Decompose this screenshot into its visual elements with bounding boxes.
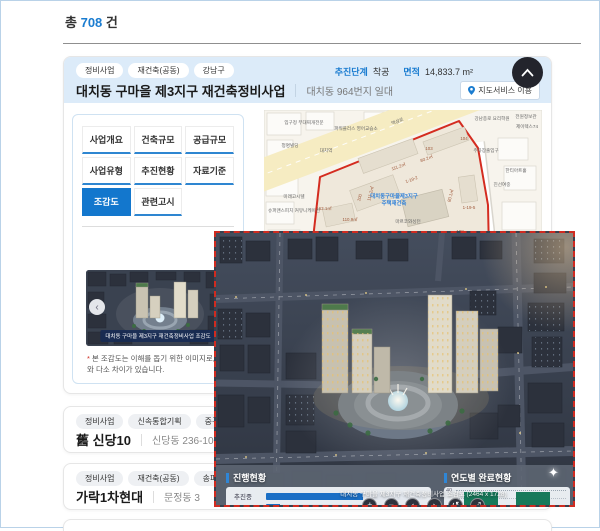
- tag-badge: 정비사업: [76, 471, 123, 486]
- list-item-tags: 정비사업 재건축(공동) 송파구: [76, 471, 234, 486]
- svg-text:주택재건축: 주택재건축: [382, 199, 407, 207]
- reset-view-button[interactable]: ↺: [448, 498, 463, 507]
- tag-badge: 정비사업: [76, 414, 123, 429]
- chevron-left-icon: ‹: [95, 302, 98, 313]
- zoom-out-button[interactable]: −: [384, 498, 399, 507]
- stage-label: 추진단계: [335, 65, 368, 78]
- zoom-in-button[interactable]: +: [362, 498, 377, 507]
- svg-text:한티아트홀: 한티아트홀: [505, 167, 526, 174]
- chevron-right-icon: ›: [433, 501, 436, 507]
- birdseye-thumbnail[interactable]: 대치동 구마을 제3지구 재건축정비사업 조감도 ‹: [86, 270, 230, 346]
- tab-birdseye-view[interactable]: 조감도: [82, 188, 131, 216]
- tab-empty-cell: [185, 188, 234, 216]
- chevron-left-icon: ‹: [411, 501, 414, 507]
- chevron-up-icon: [521, 68, 534, 77]
- viewer-controls: + − ‹ › ↺ ⤢: [274, 495, 573, 507]
- divider: [141, 434, 142, 446]
- progress-section-header: 진행현황: [226, 471, 266, 484]
- scroll-to-top-button[interactable]: [512, 57, 543, 88]
- total-suffix: 건: [106, 15, 118, 30]
- divider: [82, 226, 234, 227]
- prev-button[interactable]: ‹: [405, 498, 420, 507]
- sparkle-icon: ✦: [548, 465, 559, 481]
- list-item-address: 문정동 3: [164, 489, 200, 504]
- thumbnail-caption: 대치동 구마을 제3지구 재건축정비사업 조감도: [100, 330, 215, 342]
- svg-text:103: 103: [425, 146, 433, 151]
- list-item-title-row: 가락1차현대 문정동 3: [76, 487, 200, 506]
- svg-text:강남종로 요리학원: 강남종로 요리학원: [474, 115, 509, 122]
- header-accent-bar: [444, 473, 447, 483]
- fullscreen-icon: ⤢: [474, 501, 481, 507]
- stage-value: 착공: [373, 65, 390, 78]
- map-pin-icon: [468, 86, 475, 95]
- next-button[interactable]: ›: [427, 498, 442, 507]
- total-prefix: 총: [65, 15, 77, 30]
- svg-text:청명빌딩: 청명빌딩: [282, 142, 299, 148]
- svg-text:진선여중: 진선여중: [494, 181, 511, 188]
- detail-tabs: 사업개요 건축규모 공급규모 사업유형 추진현황 자료기준 조감도 관련고시: [82, 126, 234, 216]
- total-number: 708: [81, 15, 103, 30]
- birdseye-render-image: [216, 233, 573, 505]
- svg-text:제이렉스74: 제이렉스74: [516, 123, 538, 130]
- zoom-in-icon: +: [367, 501, 372, 507]
- project-title: 대치동 구마을 제3지구 재건축정비사업: [76, 81, 285, 100]
- total-count: 총 708 건: [65, 12, 118, 31]
- list-item-tags: 정비사업 신속통합기획 중구: [76, 414, 228, 429]
- svg-text:대치역: 대치역: [320, 147, 333, 154]
- svg-text:1-19-5: 1-19-5: [463, 205, 476, 210]
- svg-text:미래고시텔: 미래고시텔: [283, 193, 304, 200]
- zone-label: 대치동구마을제3지구: [370, 192, 418, 200]
- list-item-title: 가락1차현대: [76, 487, 143, 506]
- svg-text:전원정보관: 전원정보관: [515, 113, 537, 119]
- project-title-row: 대치동 구마을 제3지구 재건축정비사업 대치동 964번지 일대: [76, 81, 393, 100]
- svg-text:마르코와싱턴: 마르코와싱턴: [395, 218, 420, 225]
- tag-badge: 정비사업: [76, 63, 123, 78]
- svg-text:파워플러스 영어교습소: 파워플러스 영어교습소: [334, 125, 378, 132]
- header-accent-bar: [226, 473, 229, 483]
- zoom-out-icon: −: [389, 501, 394, 507]
- list-item-title: 舊 신당10: [76, 430, 131, 449]
- tab-project-type[interactable]: 사업유형: [82, 157, 131, 185]
- asterisk-mark: *: [87, 354, 90, 363]
- tag-badge: 강남구: [194, 63, 234, 78]
- divider: [63, 43, 581, 44]
- area-label: 면적: [403, 65, 420, 78]
- svg-text:110.9㎡: 110.9㎡: [342, 216, 358, 222]
- tag-badge: 재건축(공동): [128, 63, 188, 78]
- progress-row-label: 추진중: [234, 491, 260, 501]
- list-item-partial: [63, 519, 552, 531]
- divider: [295, 84, 296, 97]
- svg-text:입구정 부대찌개전문: 입구정 부대찌개전문: [284, 119, 323, 126]
- prev-image-button[interactable]: ‹: [89, 299, 105, 315]
- tab-overview[interactable]: 사업개요: [82, 126, 131, 154]
- progress-title: 진행현황: [233, 471, 266, 484]
- reset-icon: ↺: [452, 501, 460, 507]
- fullscreen-button[interactable]: ⤢: [470, 498, 485, 507]
- tab-supply-scale[interactable]: 공급규모: [185, 126, 234, 154]
- page: 총 708 건 정비사업 재건축(공동) 강남구 추진단계 착공 면적 14,8…: [0, 0, 600, 528]
- tag-badge: 신속통합기획: [128, 414, 190, 429]
- divider: [153, 491, 154, 503]
- tab-building-scale[interactable]: 건축규모: [134, 126, 183, 154]
- svg-text:슈퍼맨스피치 커뮤니케이션: 슈퍼맨스피치 커뮤니케이션: [268, 207, 320, 214]
- project-meta: 추진단계 착공 면적 14,833.7 m²: [335, 65, 473, 78]
- area-value: 14,833.7 m²: [425, 67, 473, 77]
- tab-data-basis[interactable]: 자료기준: [185, 157, 234, 185]
- tab-progress[interactable]: 추진현황: [134, 157, 183, 185]
- svg-text:104: 104: [460, 136, 468, 141]
- tag-badge: 재건축(공동): [128, 471, 188, 486]
- project-card-header: 정비사업 재건축(공동) 강남구 추진단계 착공 면적 14,833.7 m² …: [64, 57, 551, 103]
- svg-text:주차장출입구: 주차장출입구: [473, 147, 498, 154]
- project-tags: 정비사업 재건축(공동) 강남구: [76, 63, 234, 78]
- disclaimer-text: *본 조감도는 이해를 돕기 위한 이미지로, 실제와 다소 차이가 있습니다.: [87, 353, 233, 376]
- project-address: 대치동 964번지 일대: [306, 83, 393, 98]
- tab-related-notice[interactable]: 관련고시: [134, 188, 183, 216]
- birdseye-zoom-overlay[interactable]: 진행현황 추진중 연도별 완료현황 40 대치동 구마을 제3지구 재건축정비: [214, 231, 575, 507]
